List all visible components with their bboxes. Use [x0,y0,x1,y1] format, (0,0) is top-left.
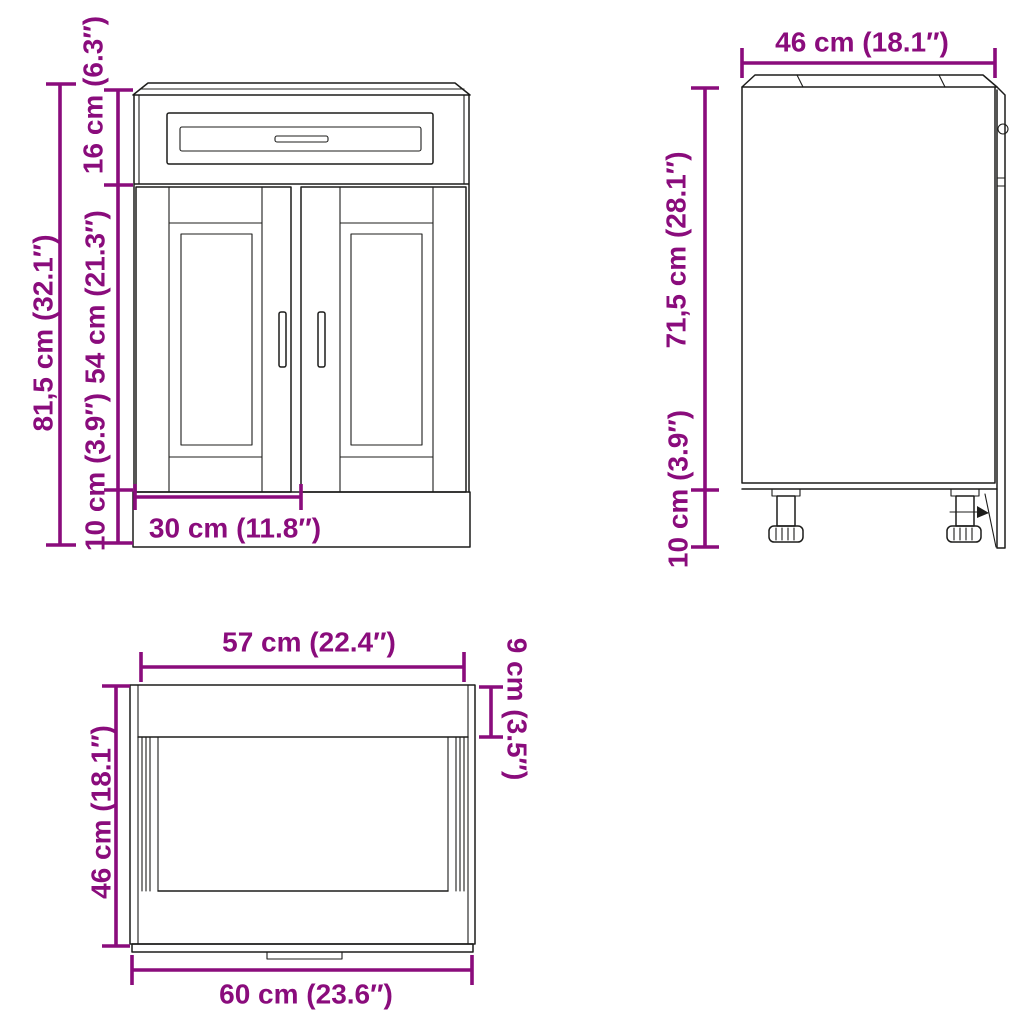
dim-label-depth: 46 cm (18.1″) [775,27,949,58]
drawer-front [167,113,433,164]
dim-label-total-width: 60 cm (23.6″) [219,979,393,1010]
cabinet-carcass-side [742,87,997,489]
dim-label-door-width: 30 cm (11.8″) [149,513,321,544]
rear-foot [947,489,989,542]
front-view: 81,5 cm (32.1″) 16 cm (6.3″) 54 cm (21.3… [28,16,471,551]
side-dimensions: 46 cm (18.1″) 71,5 cm (28.1″) 10 cm (3.9… [661,27,996,569]
left-side-panel-lines [142,737,158,891]
dim-label-body-height: 71,5 cm (28.1″) [661,151,692,348]
right-door [301,187,466,492]
product-dimension-sheet: 81,5 cm (32.1″) 16 cm (6.3″) 54 cm (21.3… [0,0,1024,1024]
dim-label-leg-height: 10 cm (3.9″) [663,410,694,568]
dim-label-door-height: 54 cm (21.3″) [80,210,111,384]
dim-line-door-width [135,484,301,510]
front-edge-strip [132,944,473,959]
right-door-handle [318,312,325,367]
dim-line-side-heights [691,88,719,547]
countertop-side [742,75,997,87]
dim-label-front-width: 57 cm (22.4″) [222,627,396,658]
dim-label-drawer-height: 16 cm (6.3″) [78,16,109,174]
leveling-arrow-icon [977,506,989,518]
drawer-handle [275,136,328,142]
left-door [136,187,291,492]
right-side-panel-lines [448,737,464,891]
top-view-handle [267,952,342,959]
hinge-plate [998,124,1008,134]
side-view: 46 cm (18.1″) 71,5 cm (28.1″) 10 cm (3.9… [661,27,1009,569]
front-dimensions: 81,5 cm (32.1″) 16 cm (6.3″) 54 cm (21.3… [28,16,322,551]
dim-label-total-height: 81,5 cm (32.1″) [28,234,59,431]
dimension-drawing: 81,5 cm (32.1″) 16 cm (6.3″) 54 cm (21.3… [0,0,1024,1024]
dim-line-back-band [479,687,503,737]
dim-label-plan-depth: 46 cm (18.1″) [86,725,117,899]
front-foot [769,489,803,542]
dim-label-plinth-height: 10 cm (3.9″) [80,393,111,551]
back-panel [985,87,1008,548]
plan-outline [130,685,475,944]
top-view: 57 cm (22.4″) 9 cm (3.5″) 46 cm (18.1″) … [86,627,533,1010]
left-door-handle [279,312,286,367]
dim-label-back-band: 9 cm (3.5″) [502,638,533,781]
countertop-front [133,83,470,95]
